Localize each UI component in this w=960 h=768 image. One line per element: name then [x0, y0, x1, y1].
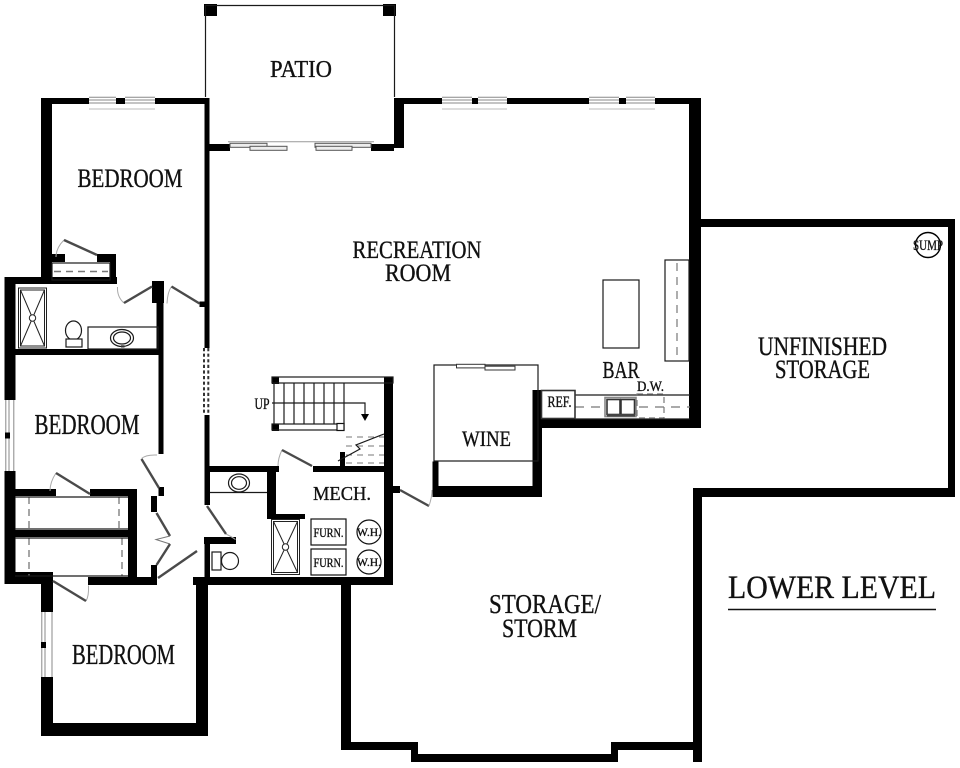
- svg-text:BAR: BAR: [603, 358, 640, 384]
- svg-text:FURN.: FURN.: [314, 556, 344, 570]
- svg-text:SUMP: SUMP: [913, 238, 943, 254]
- svg-text:FURN.: FURN.: [314, 526, 344, 540]
- svg-text:STORAGE: STORAGE: [775, 355, 870, 384]
- svg-text:REF.: REF.: [548, 394, 572, 411]
- svg-text:STORM: STORM: [502, 614, 577, 643]
- svg-text:PATIO: PATIO: [270, 57, 332, 83]
- svg-text:BEDROOM: BEDROOM: [35, 410, 140, 441]
- svg-text:ROOM: ROOM: [385, 260, 451, 287]
- svg-text:D.W.: D.W.: [637, 379, 664, 395]
- svg-text:BEDROOM: BEDROOM: [72, 640, 175, 671]
- svg-text:WINE: WINE: [462, 426, 511, 451]
- svg-text:W.H.: W.H.: [357, 555, 381, 569]
- svg-text:LOWER LEVEL: LOWER LEVEL: [728, 570, 936, 606]
- svg-text:MECH.: MECH.: [313, 483, 371, 505]
- svg-text:W.H.: W.H.: [357, 525, 381, 539]
- svg-text:UP: UP: [255, 396, 270, 413]
- svg-text:BEDROOM: BEDROOM: [78, 164, 183, 193]
